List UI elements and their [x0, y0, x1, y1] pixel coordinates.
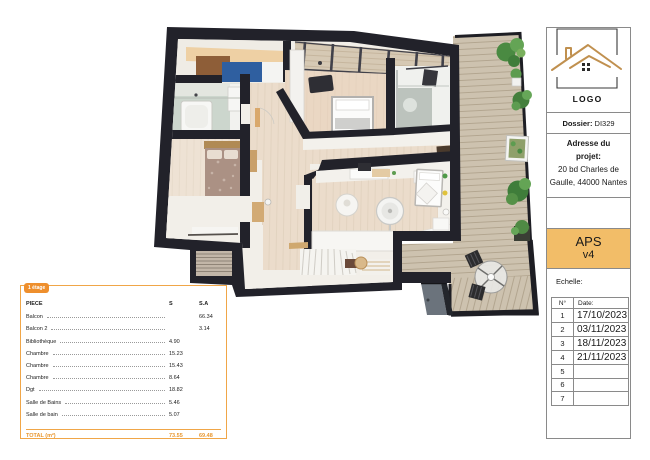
- svg-text:LOGO: LOGO: [573, 94, 603, 104]
